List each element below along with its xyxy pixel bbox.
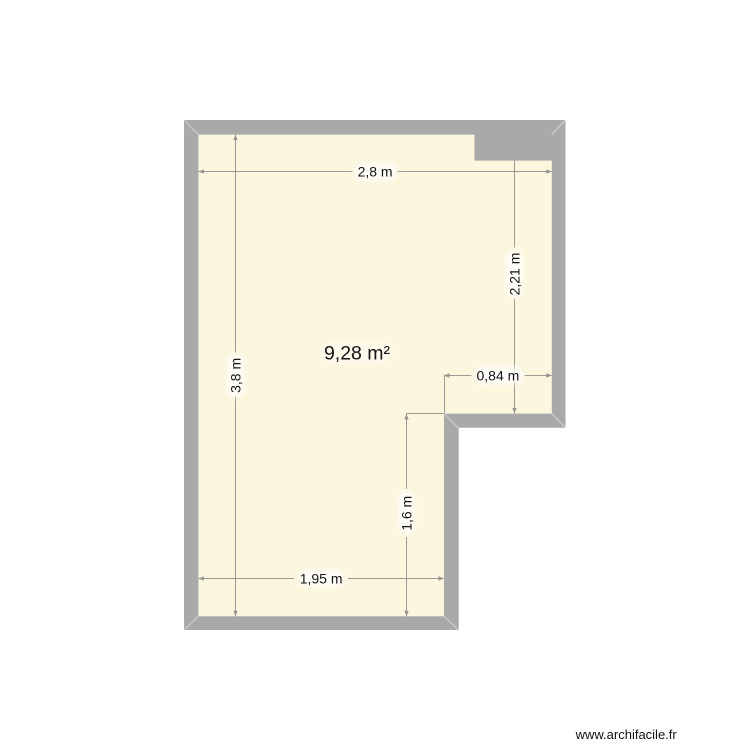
svg-text:1,6 m: 1,6 m	[398, 496, 414, 531]
svg-text:9,28 m²: 9,28 m²	[324, 343, 391, 365]
svg-text:www.archifacile.fr: www.archifacile.fr	[575, 727, 678, 742]
svg-text:2,8 m: 2,8 m	[358, 163, 393, 179]
svg-text:1,95 m: 1,95 m	[300, 570, 343, 586]
svg-text:3,8 m: 3,8 m	[227, 358, 243, 393]
svg-text:0,84 m: 0,84 m	[476, 367, 519, 383]
svg-text:2,21 m: 2,21 m	[506, 253, 522, 296]
